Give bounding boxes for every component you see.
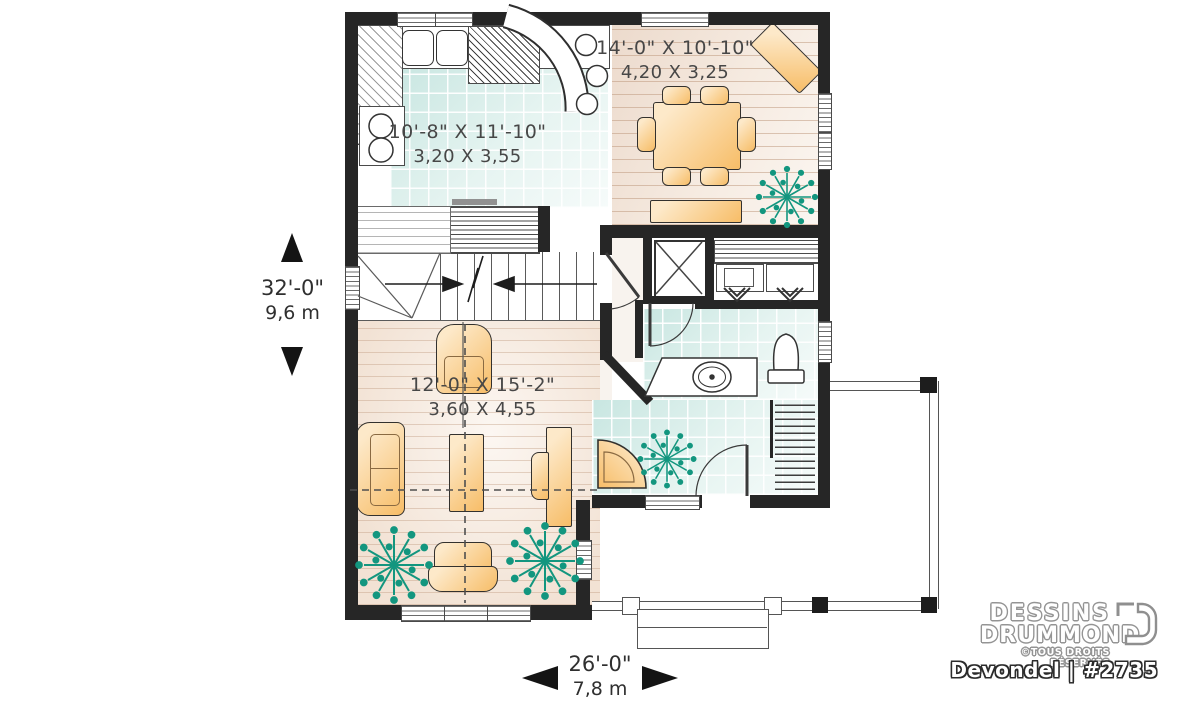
wall (635, 300, 643, 358)
kitchen-counter-hatch (468, 26, 540, 84)
brand-name-line2: DRUMMOND (980, 623, 1110, 648)
stair-upper-run (449, 206, 540, 254)
window (487, 605, 531, 622)
cabinet-drawer (724, 268, 754, 287)
kitchen-dimensions-metric: 3,20 X 3,55 (360, 145, 575, 169)
living-dimensions-metric: 3,60 X 4,55 (385, 398, 580, 422)
dimension-arrow-right (642, 666, 678, 690)
kitchen-counter-ledge (452, 199, 497, 205)
elevator-wall (643, 238, 652, 304)
dining-chair (637, 117, 656, 152)
coffee-table (449, 434, 484, 512)
porch-steps (637, 609, 769, 649)
drummond-logo-glyph (1114, 600, 1158, 648)
depth-dimension-imperial: 32'-0" (240, 276, 345, 300)
dimension-arrow-up (281, 233, 303, 262)
wall (612, 225, 818, 238)
closet-shelves (714, 240, 820, 264)
dining-table (653, 102, 741, 170)
stair-treads (440, 252, 600, 321)
porch-railing (830, 381, 930, 391)
kitchen-dimensions-imperial: 10'-8" X 11'-10" (360, 120, 575, 145)
elevator-wall (705, 238, 714, 304)
armchair-bottom-base (428, 566, 498, 592)
wall (345, 12, 358, 620)
window (818, 93, 832, 133)
sofa-cushion-line (370, 468, 398, 469)
dining-chair (700, 167, 729, 186)
porch-post (920, 377, 937, 393)
window (397, 12, 436, 27)
porch-step-line (637, 627, 767, 628)
desk (546, 427, 572, 527)
kitchen-sink-basin (436, 30, 468, 66)
width-dimension-metric: 7,8 m (545, 678, 655, 700)
dining-chair (662, 167, 691, 186)
wall (695, 300, 818, 309)
dining-chair (737, 117, 756, 152)
wall (750, 495, 830, 508)
dining-chair (700, 86, 729, 105)
width-dimension-imperial: 26'-0" (545, 652, 655, 676)
wall (538, 206, 550, 252)
dining-room-label: 14'-0" X 10'-10" 4,20 X 3,25 (580, 36, 770, 85)
wall (818, 12, 830, 508)
window (818, 321, 832, 363)
closet-hanging-rod (775, 404, 815, 490)
dimension-arrow-down (281, 347, 303, 376)
sofa-cushions (370, 434, 400, 506)
plan-title: Devondel | #2735 (950, 658, 1158, 682)
window (435, 12, 473, 27)
closet-partition (770, 400, 773, 458)
kitchen-peninsula (357, 206, 451, 254)
floor-plan-page: 14'-0" X 10'-10" 4,20 X 3,25 10'-8" X 11… (0, 0, 1200, 711)
dining-dimensions-imperial: 14'-0" X 10'-10" (580, 36, 770, 61)
dining-chair (662, 86, 691, 105)
kitchen-label: 10'-8" X 11'-10" 3,20 X 3,55 (360, 120, 575, 169)
living-room-label: 12'-0" X 15'-2" 3,60 X 4,55 (385, 373, 580, 422)
wall (592, 495, 645, 508)
sideboard (650, 200, 742, 223)
window (641, 12, 709, 27)
desk-chair (531, 452, 549, 500)
bathroom-floor (643, 309, 818, 400)
window (576, 540, 592, 580)
living-dimensions-imperial: 12'-0" X 15'-2" (385, 373, 580, 398)
window (818, 132, 832, 170)
elevator-cab (654, 240, 708, 300)
kitchen-sink-basin (402, 30, 434, 66)
window (645, 495, 700, 510)
porch-post (921, 597, 937, 613)
cabinet (766, 264, 814, 292)
window (444, 605, 488, 622)
dining-dimensions-metric: 4,20 X 3,25 (580, 61, 770, 85)
wall (600, 303, 612, 360)
depth-dimension-metric: 9,6 m (240, 302, 345, 324)
porch-railing (929, 381, 939, 609)
wall (600, 225, 612, 255)
porch-post (812, 597, 828, 613)
window (401, 605, 445, 622)
window (345, 266, 360, 310)
